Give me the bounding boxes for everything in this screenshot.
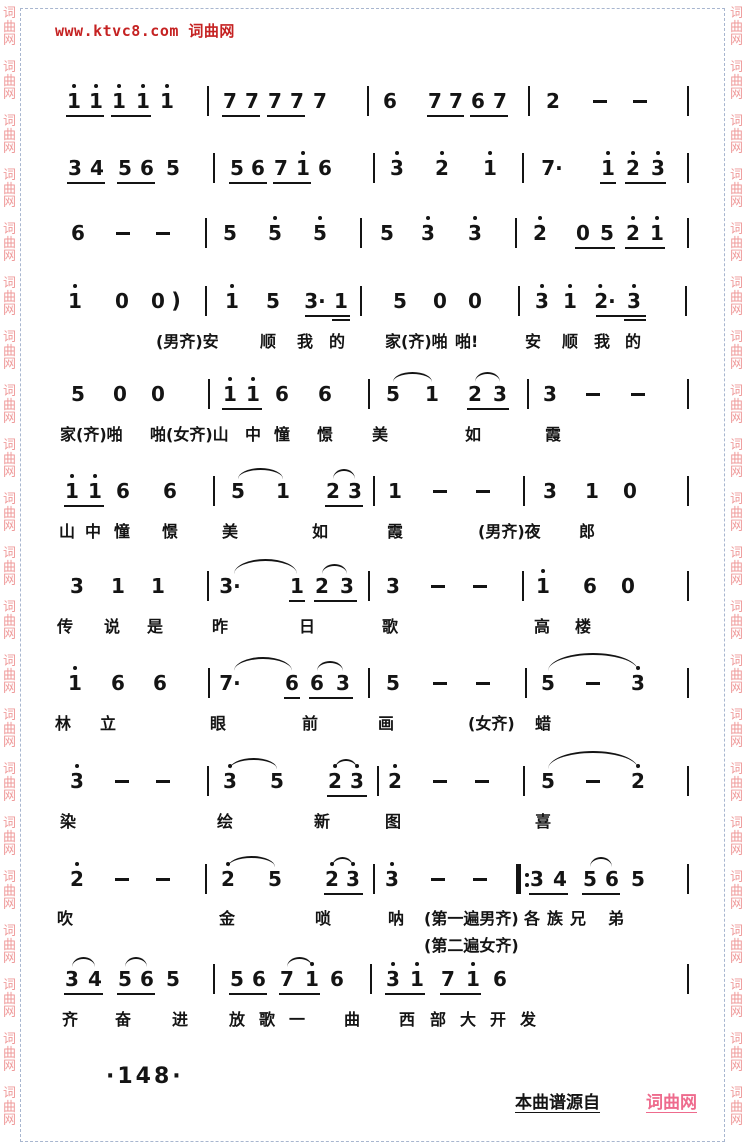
note: 1 [290,575,304,597]
note: 7 [223,90,237,112]
lyric: 画 [378,710,394,734]
note: 5 [631,868,645,890]
barline [373,864,375,894]
lyric: 昨 [212,613,228,637]
lyric: 憧 [274,421,290,445]
octave-dot [488,151,492,155]
note: 1 [68,672,82,694]
note: 1 [88,480,102,502]
dash-note [431,585,445,588]
lyric: 弟 [608,905,624,929]
lyric: 林 [55,710,71,734]
lyric: 中 [85,518,101,542]
beam-underline [222,408,262,410]
dash-note [433,682,447,685]
lyric: 的 [625,328,641,352]
slur [548,653,638,671]
octave-dot [93,474,97,478]
barline [523,476,525,506]
note: 1 [89,90,103,112]
lyric: 金 [219,905,235,929]
note: 6 [493,968,507,990]
note: 2 [315,575,329,597]
slur [230,758,277,769]
lyric: 放 [229,1006,245,1030]
note: 2 [325,868,339,890]
note: 0 [151,383,165,405]
slur [238,468,283,479]
octave-dot [310,962,314,966]
note: 6 [330,968,344,990]
note: 2 [70,868,84,890]
note: 7 [428,90,442,112]
note: 6 [605,868,619,890]
octave-dot [301,151,305,155]
lyric: 顺 [562,328,578,352]
lyric: 说 [104,613,120,637]
barline [205,286,207,316]
octave-dot [351,862,355,866]
dash-note [433,490,447,493]
note: 1 [305,968,319,990]
footer-source-prefix: 本曲谱源自 [515,1093,600,1113]
note: 7 [280,968,294,990]
repeat-dot [525,883,529,887]
note: 2 [221,868,235,890]
note: 3· [304,290,326,312]
note: 5 [386,672,400,694]
note: 5 [166,157,180,179]
note: 5 [270,770,284,792]
slur [475,372,500,382]
note: 7· [541,157,563,179]
note: 6 [471,90,485,112]
barline [207,86,209,116]
beam-underline [289,600,305,602]
note: 3 [390,157,404,179]
barline [516,864,521,894]
lyric: 憧 [114,518,130,542]
slur [287,957,312,967]
octave-dot [473,216,477,220]
dash-note [633,100,647,103]
lyric: 西 [399,1006,415,1030]
beam-underline [117,182,155,184]
dash-note [586,780,600,783]
lyric: 进 [172,1006,188,1030]
dash-note [476,682,490,685]
note: 1 [68,290,82,312]
barline [528,86,530,116]
dash-note [475,780,489,783]
octave-dot [333,764,337,768]
note: 1 [151,575,165,597]
note: 2 [328,770,342,792]
note: 3 [535,290,549,312]
dash-note [473,585,487,588]
octave-dot [141,84,145,88]
lyric: 我 [297,328,313,352]
note: 1 [536,575,550,597]
octave-dot [538,216,542,220]
note: 5 [71,383,85,405]
note: 1 [136,90,150,112]
lyric: (男齐)安 [156,328,219,352]
note: 5 [230,968,244,990]
note: 0 [115,290,129,312]
note: 3 [340,575,354,597]
lyric: (女齐) [468,710,515,734]
barline [527,379,529,409]
note: 7 [290,90,304,112]
note: 1 [225,290,239,312]
barline [687,379,689,409]
barline [523,766,525,796]
lyric: 染 [60,808,76,832]
slur [234,657,292,671]
octave-dot [636,666,640,670]
lyric: 歌 [259,1006,275,1030]
beam-underline [67,182,105,184]
octave-dot [631,216,635,220]
octave-dot [426,216,430,220]
barline [368,571,370,601]
lyric: 绘 [217,808,233,832]
note: 3 [386,968,400,990]
lyric: 的 [329,328,345,352]
lyric: 开 [490,1006,506,1030]
note: 2 [388,770,402,792]
octave-dot [70,474,74,478]
note: 0 [576,222,590,244]
octave-dot [395,151,399,155]
slur [228,856,275,867]
lyric: (第二遍女齐) [424,932,519,956]
octave-dot [73,666,77,670]
lyric: 我 [594,328,610,352]
slur [72,957,95,967]
octave-dot [606,151,610,155]
octave-dot [117,84,121,88]
beam-underline [305,315,350,317]
lyric: 吹 [57,905,73,929]
note: 6 [251,157,265,179]
note: 5 [231,480,245,502]
dash-note [156,780,170,783]
lyric: 前 [302,710,318,734]
beam-underline [64,993,103,995]
dash-note [115,780,129,783]
octave-dot [94,84,98,88]
note: 7 [274,157,288,179]
lyric: 各 [524,905,540,929]
note: 2 [546,90,560,112]
note: 1 [276,480,290,502]
dash-note [473,878,487,881]
note: 0 [468,290,482,312]
barline [687,476,689,506]
note: 3 [493,383,507,405]
octave-dot [599,284,603,288]
lyric: 族 [547,905,563,929]
lyric: (男齐)夜 [478,518,541,542]
barline [213,153,215,183]
barline [522,153,524,183]
beam-underline [385,993,425,995]
note: 5 [393,290,407,312]
beam-underline [117,993,155,995]
lyric: 兄 [570,905,586,929]
barline [685,286,687,316]
beam-underline [325,505,363,507]
lyric: 家(齐)啪 [60,421,123,445]
barline [205,864,207,894]
note: 5 [380,222,394,244]
note: 5 [268,222,282,244]
dash-note [156,232,170,235]
octave-dot [226,862,230,866]
octave-dot [636,764,640,768]
lyric: 郎 [579,518,595,542]
note: 1 [585,480,599,502]
lyric: 大 [460,1006,476,1030]
lyric: 啪(女齐)山 [150,421,229,445]
beam-underline [327,795,367,797]
note: 2 [468,383,482,405]
note: 5 [313,222,327,244]
note: 6 [163,480,177,502]
note: 1 [112,90,126,112]
note: 6 [252,968,266,990]
note: 0 [621,575,635,597]
octave-dot [355,764,359,768]
note: 1 [388,480,402,502]
lyric: 唢 [315,905,331,929]
lyric: 呐 [388,905,404,929]
lyric: 憬 [317,421,333,445]
footer-source-site: 词曲网 [646,1093,697,1113]
barline [208,379,210,409]
barline [515,218,517,248]
barline [373,153,375,183]
lyric: 美 [222,518,238,542]
lyric: 一 [289,1006,305,1030]
dash-note [476,490,490,493]
note: 3 [336,672,350,694]
note: 4 [553,868,567,890]
note: 1 [425,383,439,405]
dash-note [431,878,445,881]
note: 3 [68,157,82,179]
note: 5 [266,290,280,312]
note: 1 [483,157,497,179]
note: 7 [493,90,507,112]
barline [687,571,689,601]
score-area: 111117777767767234565567163217·123655553… [0,0,750,1147]
lyric: 是 [147,613,163,637]
slur [317,661,343,671]
octave-dot [440,151,444,155]
note: 3 [346,868,360,890]
note: 5 [118,968,132,990]
octave-dot [73,284,77,288]
barline [377,766,379,796]
beam-underline [284,697,300,699]
octave-dot [568,284,572,288]
beam-underline [229,182,267,184]
dash-note [631,393,645,396]
note: 1 [67,90,81,112]
note: 2 [631,770,645,792]
lyric: 奋 [115,1006,131,1030]
beam-underline [596,315,646,317]
note: 4 [90,157,104,179]
note: 6 [318,383,332,405]
beam-underline [529,893,568,895]
barline [687,864,689,894]
note: 7· [219,672,241,694]
slur [234,559,297,574]
barline [687,153,689,183]
note: 3 [543,480,557,502]
note: 5 [230,157,244,179]
note: 7 [245,90,259,112]
lyric: 发 [520,1006,536,1030]
beam-underline [582,893,620,895]
octave-dot [471,962,475,966]
barline [213,964,215,994]
footer-source: 本曲谱源自词曲网 [515,1088,697,1113]
barline [687,218,689,248]
barline [360,218,362,248]
lyric: 憬 [162,518,178,542]
beam-underline [427,115,464,117]
dash-note [156,878,170,881]
note: 5 [268,868,282,890]
note: 5 [541,770,555,792]
lyric: 喜 [535,808,551,832]
beam-underline [229,993,267,995]
beam-underline [470,115,508,117]
dash-note [433,780,447,783]
octave-dot [273,216,277,220]
lyric: 顺 [260,328,276,352]
note: 1 [650,222,664,244]
lyric: (第一遍男齐) [424,905,519,929]
barline [687,86,689,116]
lyric: 山 [59,518,75,542]
beam-underline [624,319,646,321]
lyric: 美 [372,421,388,445]
octave-dot [228,377,232,381]
note: 7 [449,90,463,112]
note: 5 [541,672,555,694]
repeat-dot [525,873,529,877]
note: 0 [113,383,127,405]
lyric: 高 [534,613,550,637]
note: 5 [118,157,132,179]
beam-underline [64,505,104,507]
note: 2 [435,157,449,179]
slur [333,469,355,479]
lyric: 中 [245,421,261,445]
octave-dot [391,962,395,966]
slur [332,857,353,867]
lyric: 霞 [387,518,403,542]
lyric: 齐 [62,1006,78,1030]
beam-underline [111,115,151,117]
beam-underline [625,247,665,249]
lyric: 传 [57,613,73,637]
note: 2 [626,222,640,244]
note: 3 [350,770,364,792]
beam-underline [314,600,357,602]
note: 1 [111,575,125,597]
octave-dot [540,284,544,288]
slur [590,857,612,867]
lyric: 新 [314,808,330,832]
note: 6 [111,672,125,694]
note: 4 [88,968,102,990]
note: 3 [543,383,557,405]
barline [368,668,370,698]
beam-underline [267,115,305,117]
note: 3 [386,575,400,597]
note: 3 [70,575,84,597]
dash-note [586,682,600,685]
lyric: 曲 [344,1006,360,1030]
lyric: 日 [299,613,315,637]
note: 6 [310,672,324,694]
note: 5 [386,383,400,405]
beam-underline [467,408,509,410]
barline [368,379,370,409]
octave-dot [415,962,419,966]
note: 6 [583,575,597,597]
barline [367,86,369,116]
beam-underline [309,697,353,699]
note: 3 [348,480,362,502]
beam-underline [600,182,616,184]
note: 7 [268,90,282,112]
lyric: 部 [430,1006,446,1030]
octave-dot [330,862,334,866]
beam-underline [222,115,260,117]
barline [522,571,524,601]
note: 5 [166,968,180,990]
barline [373,476,375,506]
note: 1 [563,290,577,312]
beam-underline [575,247,615,249]
note: 3 [223,770,237,792]
note: 5 [223,222,237,244]
note: 0 [433,290,447,312]
slur [335,759,357,769]
dash-note [115,878,129,881]
slur [548,751,638,769]
barline [205,218,207,248]
note: 0 [151,290,165,312]
slur [393,372,432,382]
sheet-page: www.ktvc8.com 词曲网 词曲网词曲网词曲网词曲网词曲网词曲网词曲网词… [0,0,750,1147]
octave-dot [228,764,232,768]
lyric: 霞 [545,421,561,445]
close-paren: ) [171,290,181,312]
octave-dot [75,862,79,866]
lyric: 蜡 [535,710,551,734]
note: 1 [223,383,237,405]
barline [370,964,372,994]
